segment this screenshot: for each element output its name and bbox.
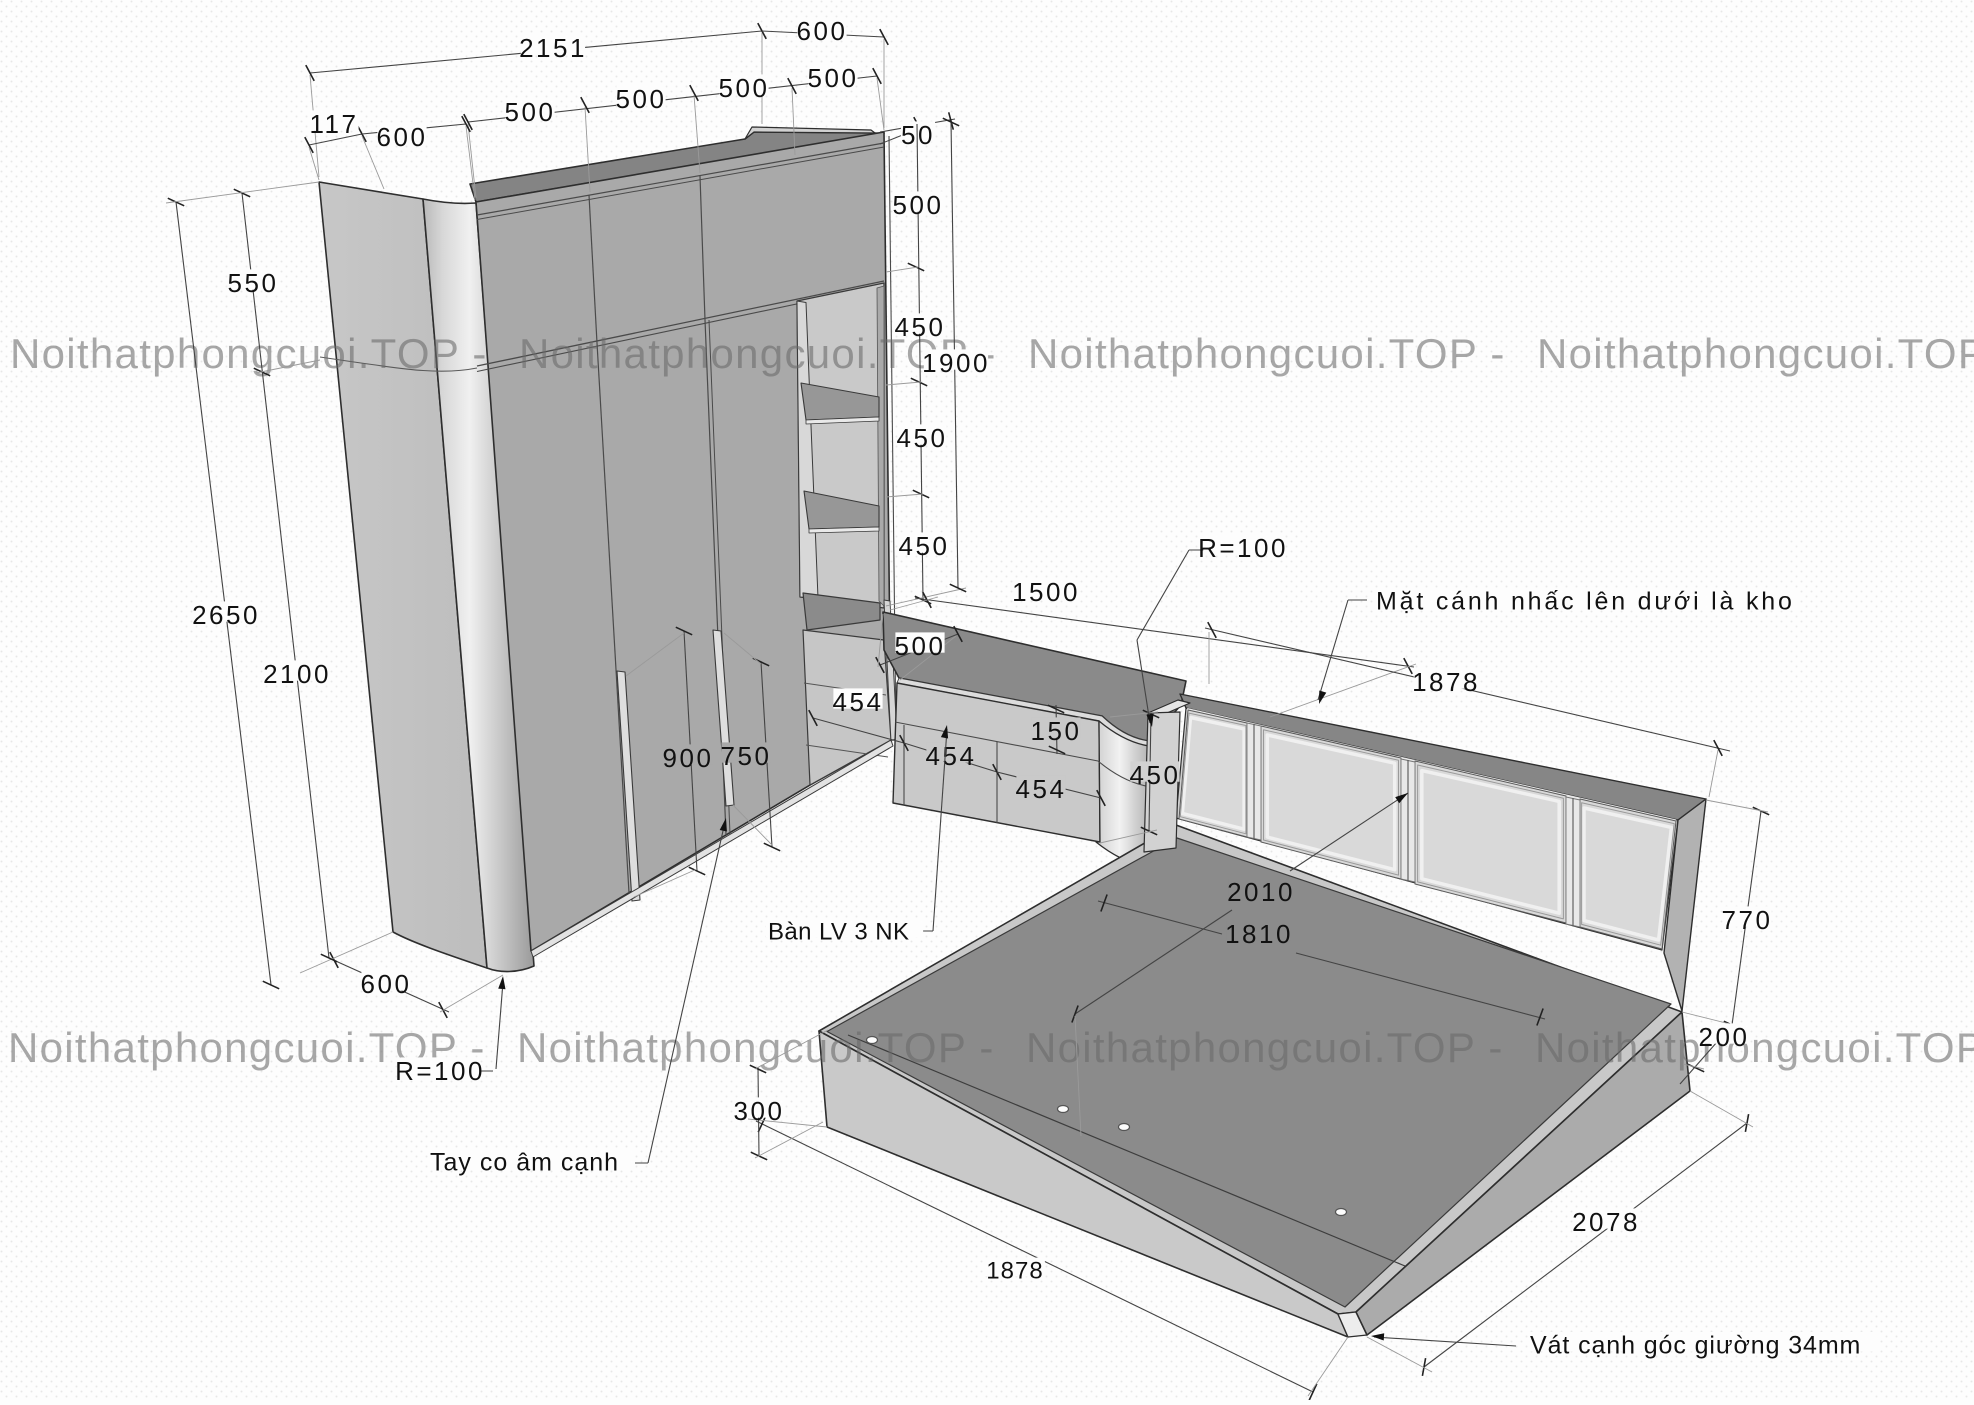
svg-text:550: 550: [228, 268, 279, 298]
svg-text:2100: 2100: [263, 659, 331, 689]
svg-text:454: 454: [833, 687, 884, 717]
svg-text:1500: 1500: [1012, 577, 1080, 607]
svg-text:2151: 2151: [519, 33, 587, 63]
svg-text:50: 50: [901, 120, 935, 150]
svg-text:Bàn LV 3 NK: Bàn LV 3 NK: [768, 918, 909, 945]
svg-text:2010: 2010: [1227, 877, 1295, 907]
svg-text:500: 500: [893, 190, 944, 220]
svg-text:300: 300: [734, 1096, 785, 1126]
svg-text:600: 600: [797, 16, 848, 46]
svg-text:Noithatphongcuoi.TOP -: Noithatphongcuoi.TOP -: [1026, 1024, 1504, 1071]
svg-text:500: 500: [505, 97, 556, 127]
svg-text:750: 750: [721, 741, 772, 771]
svg-text:770: 770: [1722, 905, 1773, 935]
svg-text:450: 450: [899, 531, 950, 561]
svg-text:2650: 2650: [192, 600, 260, 630]
svg-text:150: 150: [1031, 716, 1082, 746]
svg-text:R=100: R=100: [395, 1056, 485, 1086]
svg-text:1900: 1900: [922, 348, 990, 378]
svg-text:454: 454: [926, 741, 977, 771]
svg-text:Noithatphongcuoi.TOP -: Noithatphongcuoi.TOP -: [1028, 330, 1506, 377]
svg-text:1878: 1878: [986, 1257, 1043, 1284]
svg-text:900: 900: [663, 743, 714, 773]
svg-text:Noithatphongcuoi.TOP -: Noithatphongcuoi.TOP -: [1535, 1024, 1974, 1071]
svg-text:450: 450: [895, 312, 946, 342]
svg-text:1878: 1878: [1412, 667, 1480, 697]
svg-text:450: 450: [897, 423, 948, 453]
svg-text:Noithatphongcuoi.TOP -: Noithatphongcuoi.TOP -: [1537, 330, 1974, 377]
svg-text:Noithatphongcuoi.TOP -: Noithatphongcuoi.TOP -: [517, 1024, 995, 1071]
svg-text:500: 500: [808, 63, 859, 93]
svg-text:600: 600: [377, 122, 428, 152]
svg-text:Mặt cánh nhấc lên dưới là kho: Mặt cánh nhấc lên dưới là kho: [1376, 588, 1795, 616]
svg-text:200: 200: [1699, 1022, 1750, 1052]
svg-text:500: 500: [719, 73, 770, 103]
svg-text:117: 117: [310, 109, 359, 139]
svg-text:500: 500: [616, 84, 667, 114]
svg-text:500: 500: [895, 631, 946, 661]
svg-text:600: 600: [361, 969, 412, 999]
svg-text:1810: 1810: [1225, 919, 1293, 949]
svg-text:R=100: R=100: [1198, 533, 1288, 563]
svg-text:2078: 2078: [1572, 1207, 1640, 1237]
svg-text:Tay co âm cạnh: Tay co âm cạnh: [430, 1149, 619, 1177]
svg-text:454: 454: [1016, 774, 1067, 804]
svg-text:450: 450: [1130, 760, 1181, 790]
svg-text:Vát cạnh góc giường 34mm: Vát cạnh góc giường 34mm: [1530, 1332, 1861, 1360]
svg-text:Noithatphongcuoi.TOP -: Noithatphongcuoi.TOP -: [10, 330, 488, 377]
